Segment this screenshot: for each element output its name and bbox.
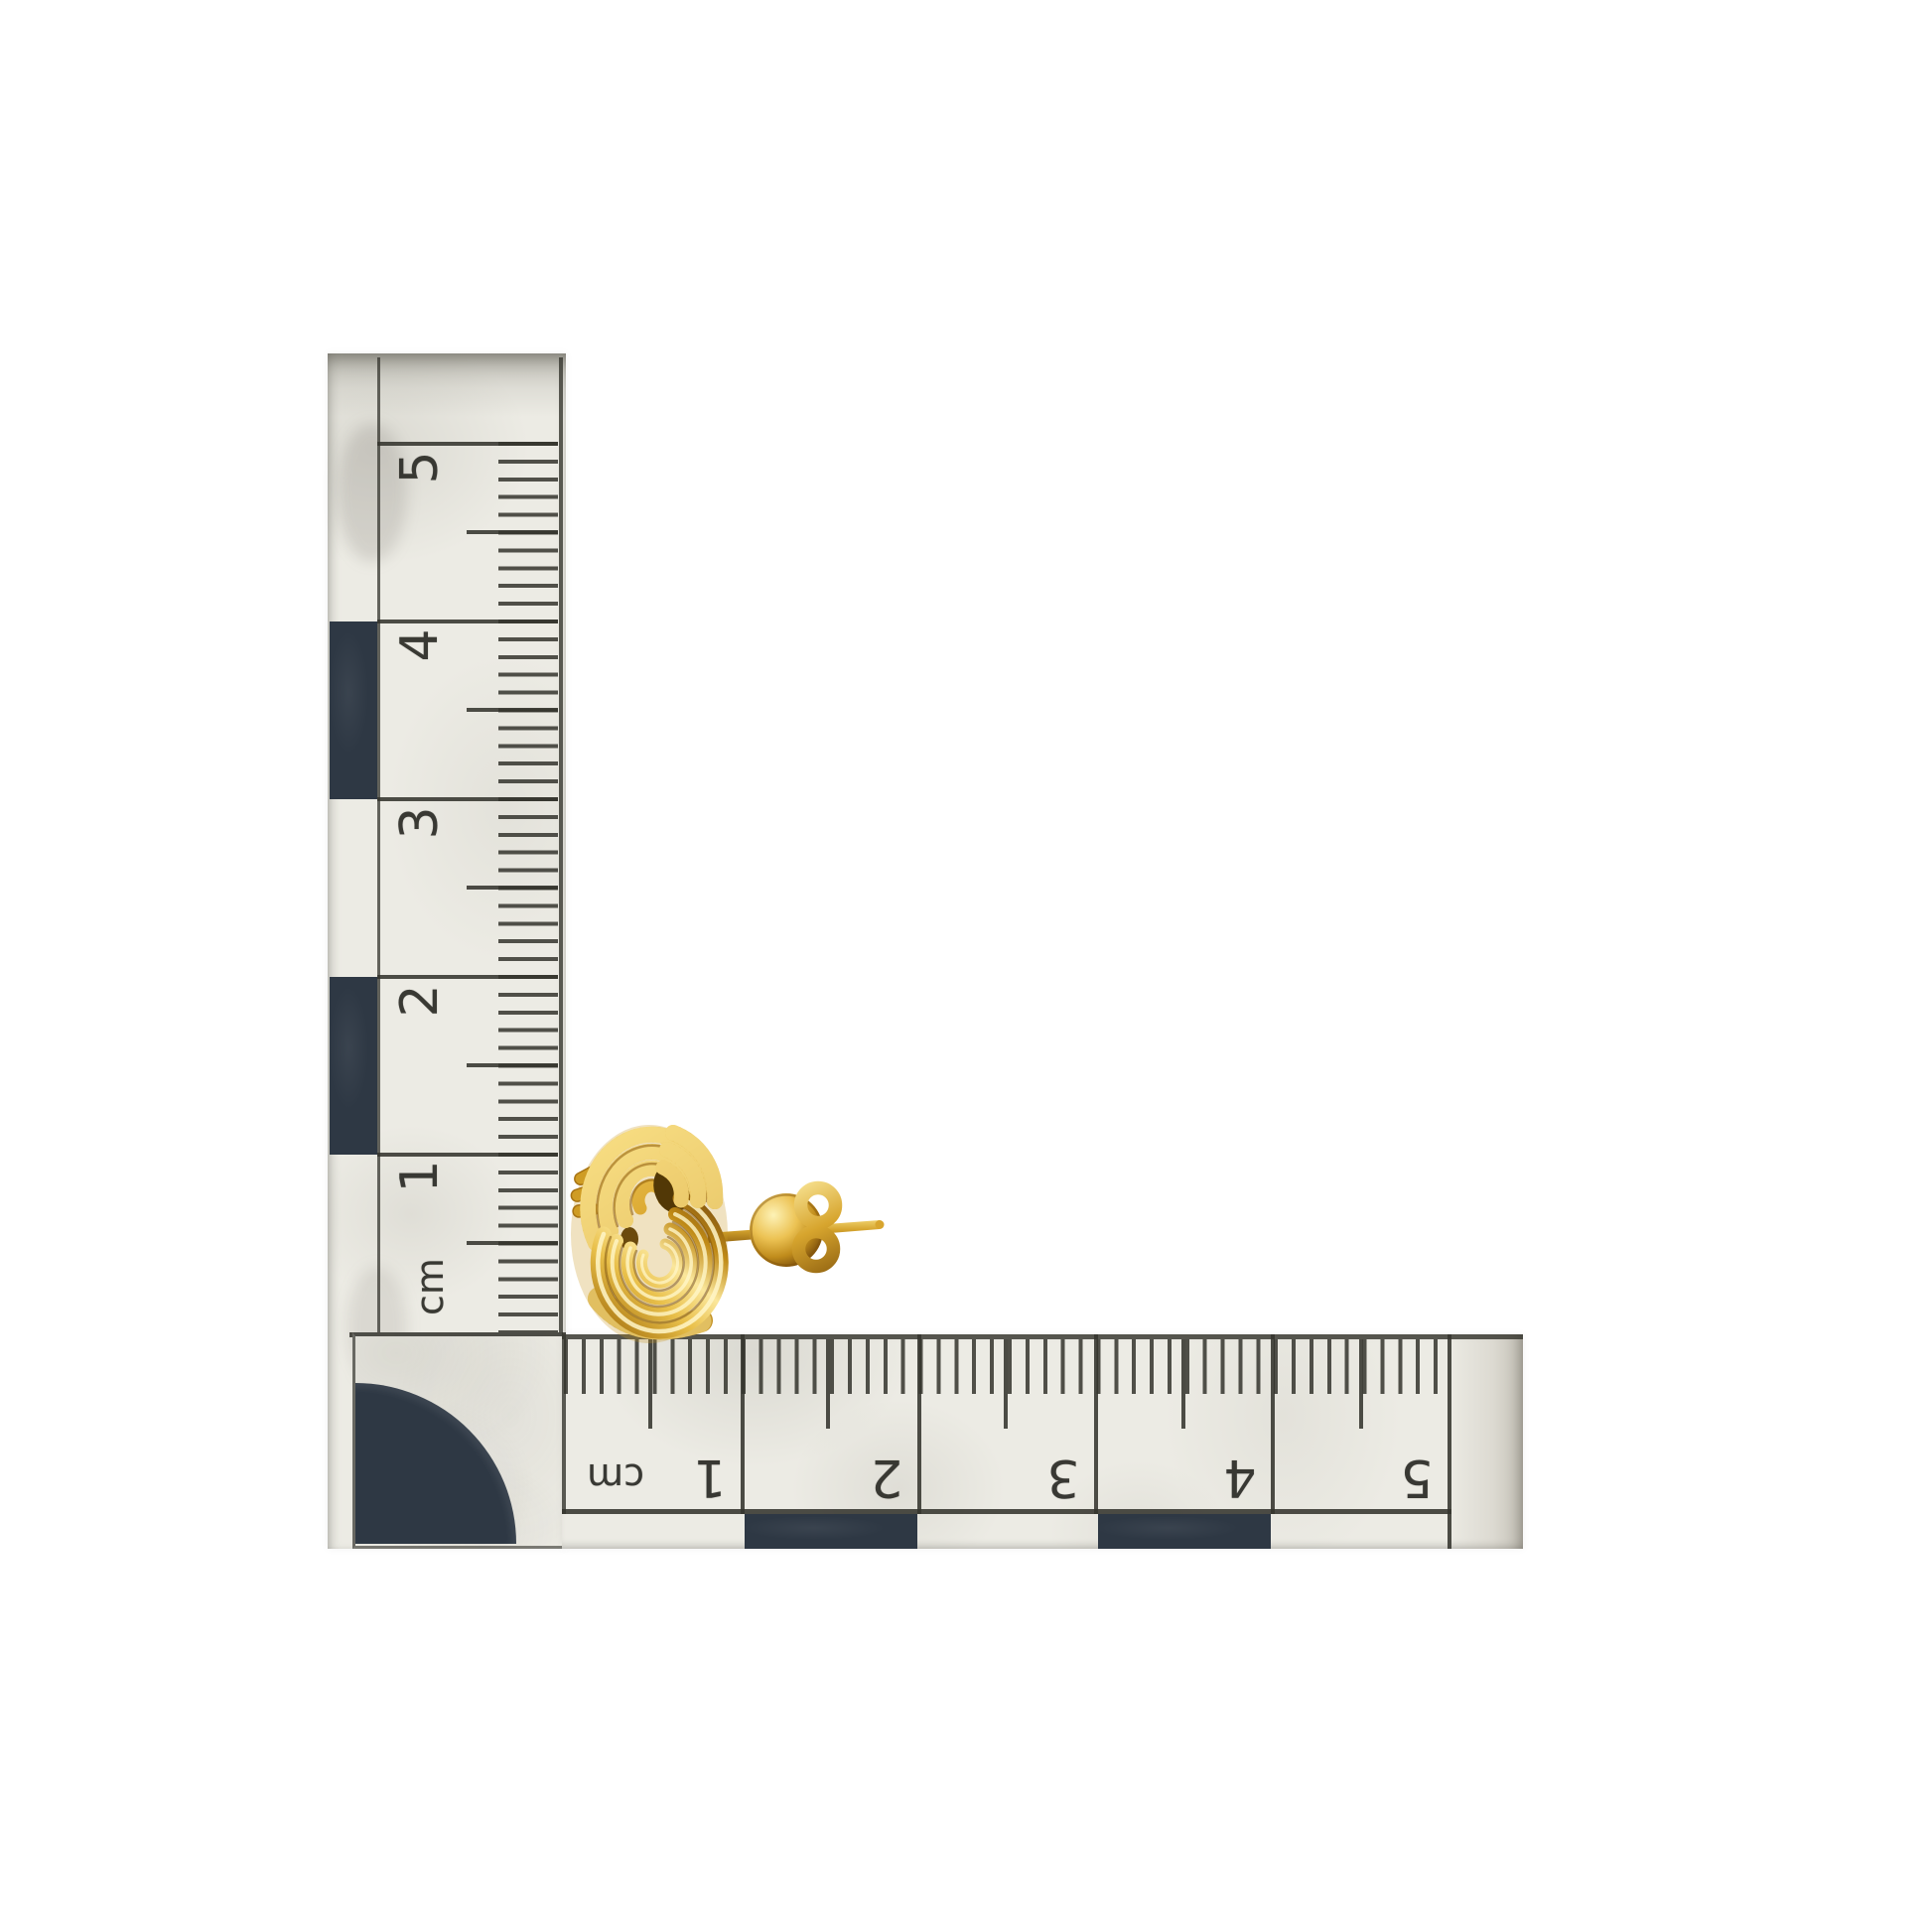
photo-canvas: 5 4 3 2 1 cm cm bbox=[0, 0, 1932, 1932]
paper-right-edge bbox=[1448, 1334, 1523, 1549]
checker-block bbox=[330, 977, 377, 1155]
ruler-number: 2 bbox=[390, 971, 450, 1031]
checker-block bbox=[330, 621, 377, 799]
scale-corner bbox=[352, 1332, 562, 1549]
ruler-number: 5 bbox=[390, 438, 450, 497]
paper-top-edge bbox=[328, 353, 566, 417]
ruler-number: 4 bbox=[390, 616, 450, 675]
ruler-number: 3 bbox=[390, 793, 450, 853]
strip-top-line bbox=[562, 1509, 1451, 1514]
unit-label: cm bbox=[574, 1448, 657, 1507]
earring-photo bbox=[551, 1072, 898, 1370]
checker-block bbox=[1098, 1514, 1271, 1549]
unit-label: cm bbox=[400, 1245, 460, 1328]
checker-divider-line bbox=[377, 357, 380, 1332]
ruler-number: 5 bbox=[1387, 1448, 1447, 1507]
ruler-number: 2 bbox=[857, 1448, 916, 1507]
ruler-number: 3 bbox=[1034, 1448, 1093, 1507]
butterfly-wing-upper bbox=[801, 1188, 836, 1223]
ruler-number: 4 bbox=[1210, 1448, 1270, 1507]
butterfly-back bbox=[750, 1188, 836, 1268]
checker-block bbox=[745, 1514, 917, 1549]
earring-knot bbox=[570, 1125, 728, 1343]
ruler-number: 1 bbox=[390, 1147, 450, 1206]
quarter-circle bbox=[355, 1383, 516, 1544]
ruler-number: 1 bbox=[680, 1448, 740, 1507]
mm-tick-strip bbox=[498, 442, 558, 1334]
